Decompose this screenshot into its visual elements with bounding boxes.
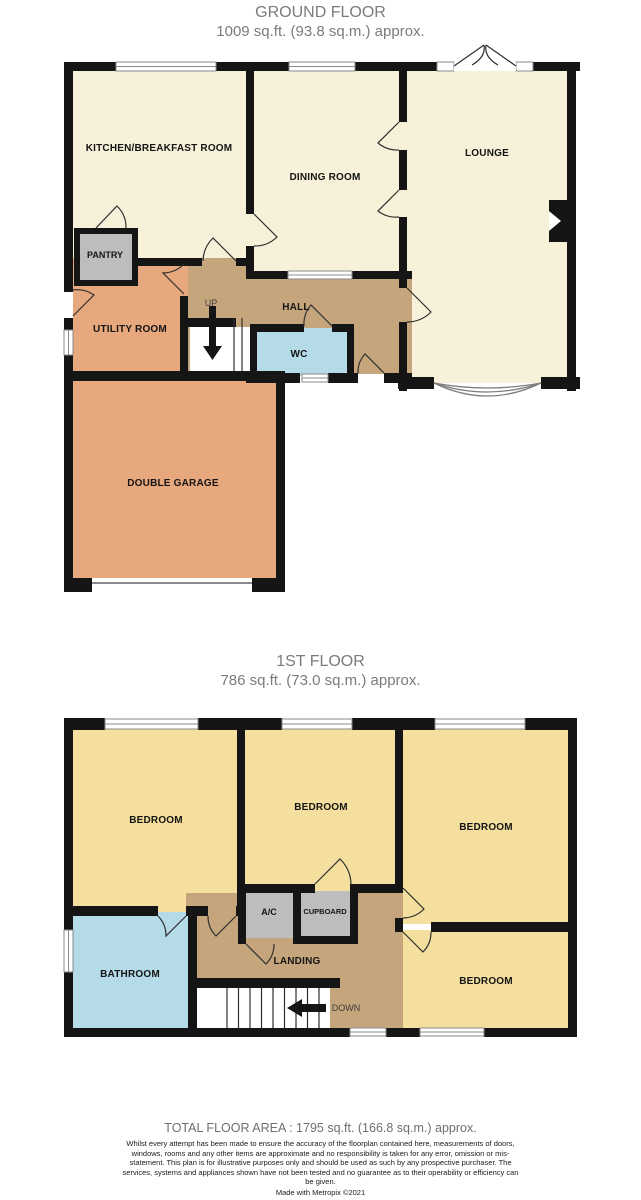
bedroom4-window <box>420 1028 484 1036</box>
wc-window <box>302 374 328 382</box>
room-label-bathroom: BATHROOM <box>100 969 160 980</box>
lounge-bay-window <box>434 383 541 396</box>
room-label-ac: A/C <box>261 907 277 917</box>
bathroom-window <box>64 930 73 972</box>
room-label-pantry: PANTRY <box>87 250 123 260</box>
bedroom2-window <box>282 719 352 729</box>
kitchen-window <box>116 62 216 71</box>
room-label-bedroom-4: BEDROOM <box>459 976 513 987</box>
room-label-bedroom-1: BEDROOM <box>129 815 183 826</box>
room-label-hall: HALL <box>282 302 309 313</box>
landing-window <box>350 1028 386 1036</box>
room-label-garage: DOUBLE GARAGE <box>127 478 219 489</box>
utility-window <box>64 330 73 355</box>
ground-floor-plan: KITCHEN/BREAKFAST ROOM DINING ROOM LOUNG… <box>64 45 580 592</box>
first-floor-plan: BEDROOM BEDROOM BEDROOM BEDROOM BATHROOM… <box>64 718 577 1037</box>
garage-door-opening <box>92 578 252 592</box>
total-floor-area: TOTAL FLOOR AREA : 1795 sq.ft. (166.8 sq… <box>0 1121 641 1135</box>
fireplace-icon <box>549 200 571 242</box>
first-floor-stairs <box>188 978 340 1028</box>
room-label-utility: UTILITY ROOM <box>93 324 167 335</box>
room-label-cupboard: CUPBOARD <box>303 907 347 916</box>
room-label-bedroom-3: BEDROOM <box>459 822 513 833</box>
metropix-credit: Made with Metropix ©2021 <box>0 1188 641 1197</box>
stairs-down-label: DOWN <box>332 1003 361 1013</box>
disclaimer-text: Whilst every attempt has been made to en… <box>123 1139 519 1187</box>
floorplan-drawing: KITCHEN/BREAKFAST ROOM DINING ROOM LOUNG… <box>0 0 641 1200</box>
footer: TOTAL FLOOR AREA : 1795 sq.ft. (166.8 sq… <box>0 1121 641 1200</box>
room-label-bedroom-2: BEDROOM <box>294 802 348 813</box>
floorplan-page: GROUND FLOOR 1009 sq.ft. (93.8 sq.m.) ap… <box>0 0 641 1200</box>
dining-hall-window <box>288 271 352 279</box>
utility-door-gap <box>64 292 73 318</box>
lounge-french-door-windows <box>437 62 533 71</box>
stairs-up-label: UP <box>205 298 218 308</box>
room-label-dining: DINING ROOM <box>289 172 360 183</box>
bedroom1-window <box>105 719 198 729</box>
room-label-wc: WC <box>290 349 307 360</box>
hall-rear-door-gap <box>358 374 384 383</box>
dining-window <box>289 62 355 71</box>
room-label-kitchen: KITCHEN/BREAKFAST ROOM <box>86 143 233 154</box>
room-label-lounge: LOUNGE <box>465 148 509 159</box>
bedroom3-window <box>435 719 525 729</box>
room-label-landing: LANDING <box>274 956 321 967</box>
